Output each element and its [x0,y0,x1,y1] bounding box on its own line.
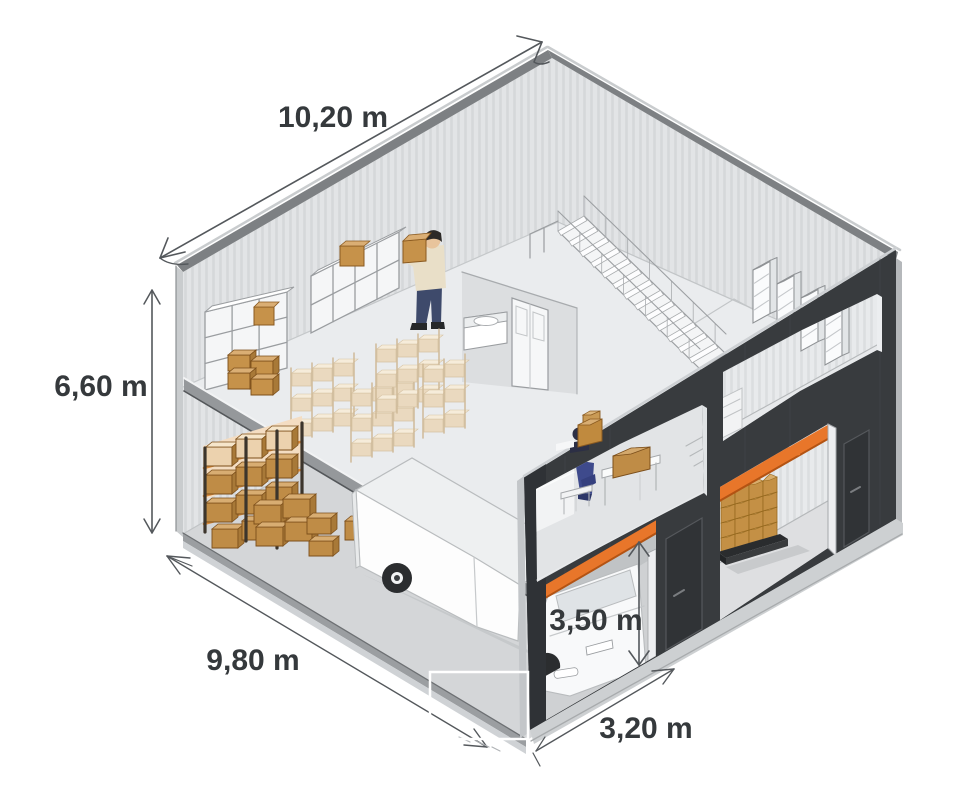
svg-text:6,60 m: 6,60 m [54,370,147,403]
svg-text:10,20 m: 10,20 m [278,101,388,134]
svg-text:3,20 m: 3,20 m [599,712,692,745]
svg-text:3,50 m: 3,50 m [549,604,642,637]
svg-text:9,80 m: 9,80 m [206,644,299,677]
